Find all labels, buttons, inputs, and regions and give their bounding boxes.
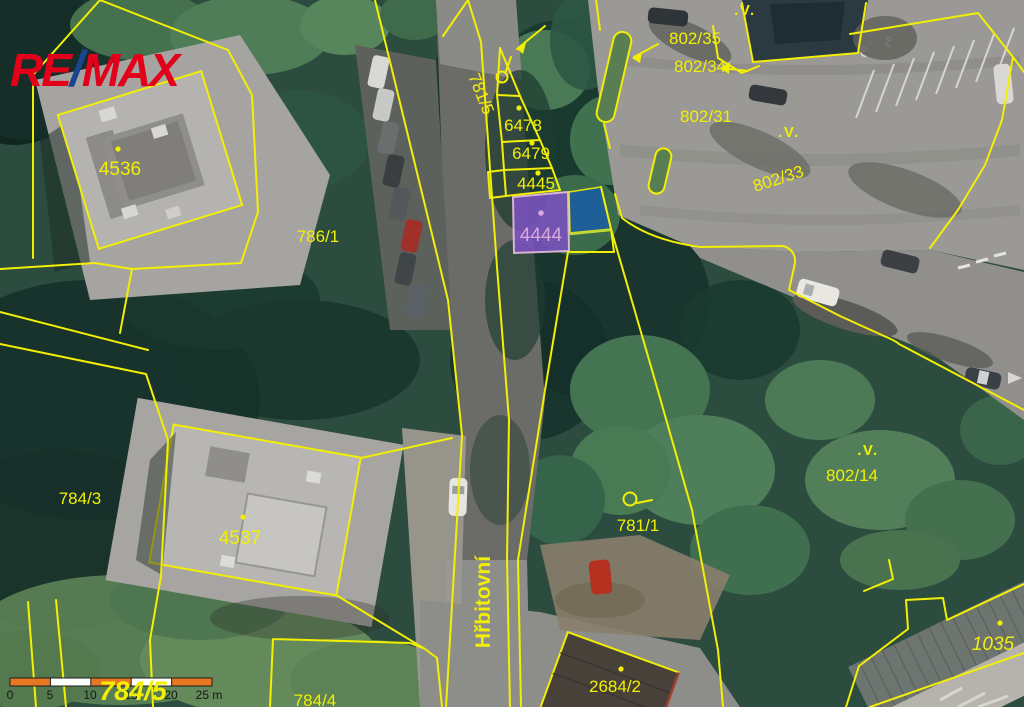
parcel-label-4445: 4445: [517, 174, 555, 193]
parcel-label-802-35: 802/35: [669, 29, 721, 48]
map-canvas[interactable]: 4536 786/1 781/5 6478 6479 4445 4444 802…: [0, 0, 1024, 707]
remax-logo: RE/MAX: [10, 44, 178, 94]
scrub-symbol-icon: .V.: [778, 124, 799, 141]
scrub-symbol-icon: .V.: [734, 2, 755, 19]
parcel-label-6478: 6478: [504, 116, 542, 135]
scrub-symbol-icon: .V.: [857, 442, 878, 459]
parcel-label-784-4: 784/4: [294, 691, 337, 707]
scale-segment: [172, 678, 212, 686]
logo-slash-icon: /: [70, 41, 82, 97]
parcel-label-2684-2: 2684/2: [589, 677, 641, 696]
scale-segment: [10, 678, 50, 686]
parcel-label-784-5: 784/5: [99, 676, 168, 706]
parcel-label-6479: 6479: [512, 144, 550, 163]
parcel-label-1035: 1035: [972, 634, 1015, 655]
street-name-label: Hřbitovní: [472, 555, 495, 648]
parcel-label-4537: 4537: [219, 528, 261, 549]
parcel-label-781-1: 781/1: [617, 516, 660, 535]
parcel-label-802-14: 802/14: [826, 466, 878, 485]
parcel-label-802-31: 802/31: [680, 107, 732, 126]
parcel-label-786-1: 786/1: [297, 227, 340, 246]
scale-tick-0: 0: [7, 688, 14, 702]
parcel-label-4536: 4536: [99, 159, 141, 180]
parcel-label-802-34: 802/34: [674, 57, 726, 76]
scale-tick-5: 5: [47, 688, 54, 702]
parcel-label-784-3: 784/3: [59, 489, 102, 508]
highlight-parcel-dot: [538, 210, 544, 216]
logo-re: RE: [10, 44, 70, 96]
scale-tick-25m: 25 m: [196, 688, 223, 702]
car: [588, 559, 612, 595]
cadastral-map-screenshot: RE/MAX: [0, 0, 1024, 707]
parcel-label-4444: 4444: [520, 225, 563, 246]
scale-tick-10: 10: [83, 688, 97, 702]
logo-max: MAX: [82, 44, 178, 96]
